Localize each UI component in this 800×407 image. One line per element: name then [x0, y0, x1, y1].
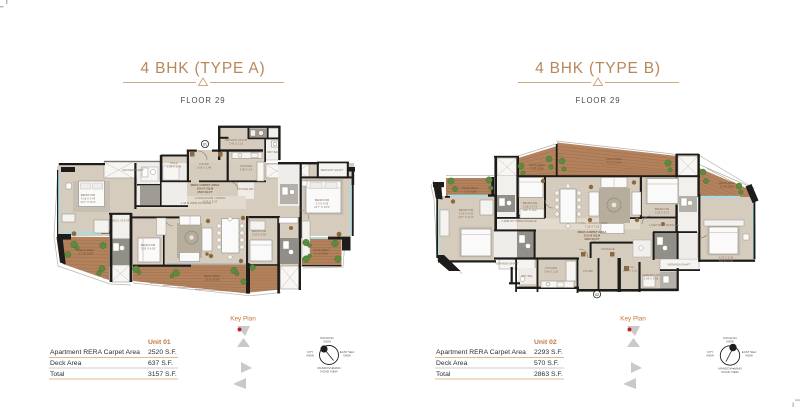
- svg-text:Key Plan: Key Plan: [620, 316, 646, 323]
- svg-text:41.17 SQM: 41.17 SQM: [607, 160, 622, 164]
- svg-text:Key Plan: Key Plan: [230, 316, 256, 323]
- svg-text:01: 01: [203, 143, 207, 147]
- svg-text:570 S.F.: 570 S.F.: [534, 360, 559, 367]
- svg-text:Unit 02: Unit 02: [534, 339, 557, 346]
- svg-text:ROAD VIEW: ROAD VIEW: [721, 370, 738, 374]
- svg-text:VIEW: VIEW: [706, 353, 714, 357]
- svg-text:13'7" X 11'3": 13'7" X 11'3": [80, 200, 96, 204]
- svg-text:3.28M DIY WIDE PASSAGE: 3.28M DIY WIDE PASSAGE: [501, 219, 536, 223]
- svg-text:Total: Total: [50, 371, 65, 378]
- svg-text:2.46 X 2.13: 2.46 X 2.13: [229, 141, 244, 145]
- svg-text:7.79 SQM: 7.79 SQM: [464, 189, 477, 193]
- svg-text:Deck Area: Deck Area: [436, 360, 468, 367]
- svg-text:DRY BAL: DRY BAL: [521, 274, 533, 278]
- svg-text:Unit 01: Unit 01: [148, 339, 171, 346]
- svg-text:4 BHK (TYPE A): 4 BHK (TYPE A): [141, 60, 266, 77]
- svg-text:1.98 X 1.22: 1.98 X 1.22: [623, 268, 638, 272]
- svg-text:2293 SQ.FT: 2293 SQ.FT: [584, 237, 600, 241]
- svg-text:637 S.F.: 637 S.F.: [148, 360, 173, 367]
- svg-text:STORE RM: STORE RM: [239, 187, 254, 191]
- svg-text:2520 S.F.: 2520 S.F.: [148, 349, 177, 356]
- svg-text:2520 SQ.FT: 2520 SQ.FT: [197, 190, 213, 194]
- svg-text:Deck Area: Deck Area: [50, 360, 82, 367]
- svg-text:11.94 SQM: 11.94 SQM: [720, 184, 735, 188]
- svg-text:Apartment RERA Carpet Area: Apartment RERA Carpet Area: [50, 349, 140, 356]
- svg-text:2293 S.F.: 2293 S.F.: [534, 349, 563, 356]
- svg-text:VIEW: VIEW: [726, 339, 734, 343]
- svg-text:12'7" X 13'3": 12'7" X 13'3": [314, 205, 330, 209]
- svg-text:35.02 SQM: 35.02 SQM: [205, 277, 220, 281]
- svg-text:13'7" X 11'3": 13'7" X 11'3": [458, 215, 474, 219]
- svg-text:108" X 122": 108" X 122": [523, 208, 538, 212]
- svg-text:9.43 SQM: 9.43 SQM: [531, 166, 544, 170]
- svg-text:3.05 X 1.48: 3.05 X 1.48: [197, 165, 212, 169]
- svg-text:2863 S.F.: 2863 S.F.: [534, 371, 563, 378]
- svg-text:VIEW: VIEW: [745, 353, 753, 357]
- svg-text:1.98 X 2.46: 1.98 X 2.46: [644, 276, 659, 280]
- svg-text:SERVANT SHAFT: SERVANT SHAFT: [321, 168, 344, 172]
- svg-text:4.25 X 5.36: 4.25 X 5.36: [719, 256, 734, 260]
- svg-text:17.56 SQM: 17.56 SQM: [79, 251, 94, 255]
- svg-text:1.09M WIDE PASSAGE: 1.09M WIDE PASSAGE: [649, 223, 679, 227]
- svg-text:7.26 X 7.16: 7.26 X 7.16: [585, 224, 600, 228]
- svg-text:Apartment RERA Carpet Area: Apartment RERA Carpet Area: [436, 349, 526, 356]
- svg-text:VIEW: VIEW: [306, 353, 314, 357]
- svg-text:4 BHK (TYPE B): 4 BHK (TYPE B): [535, 60, 661, 77]
- svg-text:BED 1 / B.R VR: BED 1 / B.R VR: [113, 220, 130, 223]
- svg-text:VERANDA SHAFT: VERANDA SHAFT: [667, 263, 691, 267]
- svg-text:11.15 SQM: 11.15 SQM: [314, 251, 329, 255]
- svg-text:1.98 X 2.46: 1.98 X 2.46: [167, 164, 182, 168]
- svg-text:VIEW: VIEW: [323, 339, 331, 343]
- svg-text:PASSAGE: PASSAGE: [601, 247, 614, 251]
- svg-text:VIEW: VIEW: [343, 353, 351, 357]
- svg-text:DECKER SHAFT: DECKER SHAFT: [122, 168, 144, 172]
- svg-text:3.28 X 3.73: 3.28 X 3.73: [655, 210, 670, 214]
- svg-text:3.48 X 2.4: 3.48 X 2.4: [240, 167, 253, 171]
- svg-text:4.05 X 8.23: 4.05 X 8.23: [203, 199, 218, 203]
- svg-text:ROAD VIEW: ROAD VIEW: [320, 369, 337, 373]
- svg-text:3.05 X 4.05: 3.05 X 4.05: [141, 246, 156, 250]
- svg-text:Total: Total: [436, 371, 451, 378]
- svg-text:02: 02: [595, 293, 599, 297]
- svg-text:VERANDA SHAFT: VERANDA SHAFT: [495, 262, 519, 266]
- svg-text:DRY BAL: DRY BAL: [267, 150, 279, 154]
- svg-text:3.05 X 3.05: 3.05 X 3.05: [252, 232, 267, 236]
- svg-text:FOYER: FOYER: [583, 269, 593, 273]
- svg-text:3157 S.F.: 3157 S.F.: [148, 371, 177, 378]
- svg-text:FLOOR 29: FLOOR 29: [181, 96, 226, 105]
- svg-text:FLOOR 29: FLOOR 29: [576, 96, 621, 105]
- svg-text:3.66 X 2.29: 3.66 X 2.29: [544, 269, 559, 273]
